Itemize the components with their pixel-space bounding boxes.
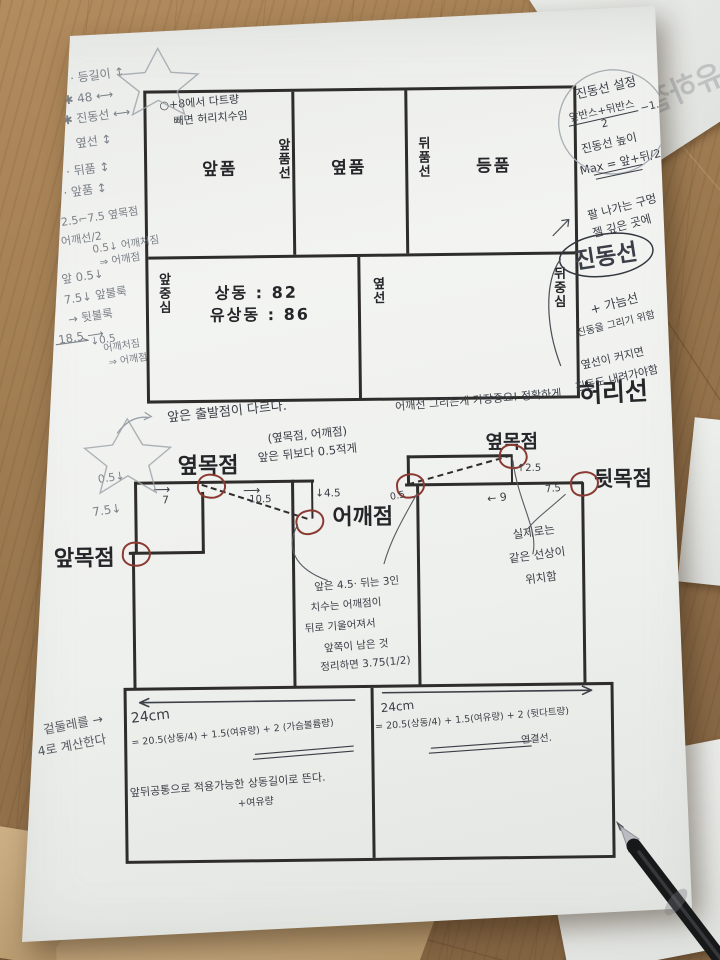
front-75-down: 7.5↓ bbox=[91, 502, 122, 520]
back-panel-seam-line bbox=[404, 90, 409, 253]
armhole-line-label: 진동선 bbox=[573, 239, 640, 275]
front-05-down: 0.5↓ bbox=[97, 470, 125, 487]
same-line-note2: 같은 선상이 bbox=[508, 545, 566, 566]
bust-ease-measurement: 유상동 : 86 bbox=[210, 301, 310, 326]
front-neck-inner-line bbox=[201, 492, 204, 553]
back-75-value: 7.5 bbox=[545, 483, 562, 496]
armhole-horizontal-line bbox=[148, 251, 575, 259]
back-panel-label: 등품 bbox=[476, 151, 512, 176]
chest-width-diagram-box: 앞품 옆품 등품 앞품선 뒤품선 앞중심 상동 : 82 유상동 : 86 옆선… bbox=[143, 85, 580, 403]
back-panel-seam-label: 뒤품선 bbox=[413, 136, 433, 178]
photo-of-pattern-worksheet: 유하철 앞품 옆품 등품 앞품선 뒤품선 앞중심 상동 : 82 유상동 : 8… bbox=[0, 0, 720, 960]
center-back-label: 뒤중심 bbox=[548, 266, 568, 308]
margin-note-shoulder-point2: ⇒ 어깨점 bbox=[108, 352, 148, 369]
armhole-setting-note: 진동선 설정 bbox=[574, 74, 637, 102]
reason-note-line3: 뒤로 기울어져서 bbox=[304, 617, 376, 635]
front-neck-point-label: 앞목점 bbox=[54, 540, 115, 573]
margin-note-front-curve: 7.5↓ 앞불룩 bbox=[63, 285, 128, 308]
start-point-note: 앞은 출발점이 다르다. bbox=[167, 400, 288, 427]
margin-note-back-length: · 등길이 ↕ bbox=[69, 66, 125, 87]
front-neck-point-circle bbox=[121, 541, 152, 568]
gauge-line-note: + 가늠선 bbox=[589, 291, 640, 317]
reason-note-line1: 앞은 4.5· 뒤는 3인 bbox=[314, 575, 400, 594]
margin-note-48: ✱ 48 ⟷ bbox=[63, 88, 115, 108]
fraction-minus: −1.5 bbox=[639, 98, 667, 115]
margin-note-armhole: ✱ 진동선 ⟷ bbox=[62, 106, 131, 129]
center-front-label: 앞중심 bbox=[153, 272, 173, 314]
reason-note-line5: 정리하면 3.75(1/2) bbox=[320, 654, 411, 673]
side-seam-label: 옆선 bbox=[368, 277, 387, 305]
reason-note-line4: 앞쪽이 남은 것 bbox=[324, 637, 389, 654]
width105-value: 10.5 bbox=[249, 494, 271, 506]
pattern-worksheet-sheet: 앞품 옆품 등품 앞품선 뒤품선 앞중심 상동 : 82 유상동 : 86 옆선… bbox=[0, 0, 720, 960]
shoulder-point-circle bbox=[293, 507, 327, 538]
shoulder-point-label: 어깨점 bbox=[332, 499, 393, 532]
width7-value: 7 bbox=[162, 494, 169, 506]
band-divider-line bbox=[371, 688, 376, 858]
side-seam-line bbox=[357, 257, 362, 398]
front-panel-label: 앞품 bbox=[202, 154, 238, 179]
side-panel-label: 옆품 bbox=[331, 153, 367, 178]
front-left-edge bbox=[132, 552, 136, 689]
back-neck-point-label: 뒷목점 bbox=[594, 462, 652, 493]
draw-armhole-note: 진동을 그리기 위함 bbox=[576, 310, 656, 340]
same-line-note1: 실제로는 bbox=[512, 523, 556, 542]
margin-note-back-panel: · 뒤품 ↕ bbox=[65, 160, 110, 180]
margin-note-front-panel: · 앞품 ↕ bbox=[63, 181, 108, 201]
pencil-arrow-doodle bbox=[117, 413, 151, 433]
dart-note-line2: 빼면 허리치수임 bbox=[173, 110, 248, 129]
drop45-value: ↓4.5 bbox=[315, 487, 341, 499]
back-right-edge bbox=[581, 482, 586, 683]
margin-note-side-seam: 옆선 ↕ bbox=[75, 133, 112, 151]
sheet-content: 앞품 옆품 등품 앞품선 뒤품선 앞중심 상동 : 82 유상동 : 86 옆선… bbox=[0, 0, 720, 960]
back-9-value: ← 9 bbox=[487, 491, 508, 506]
margin-note-front-drop: 앞 0.5↓ bbox=[61, 267, 105, 286]
front-panel-seam-label: 앞품선 bbox=[273, 138, 293, 180]
back-05-value: 0.5 bbox=[389, 490, 406, 504]
back-side-seam-edge bbox=[416, 485, 421, 685]
same-line-note3: 위치함 bbox=[524, 570, 557, 587]
fraction-denominator: 2 bbox=[600, 118, 609, 130]
front-side-seam-edge bbox=[291, 480, 296, 688]
main-sheet-wrap: 앞품 옆품 등품 앞품선 뒤품선 앞중심 상동 : 82 유상동 : 86 옆선… bbox=[0, 0, 720, 960]
back-25-rise: ↑2.5 bbox=[517, 463, 541, 475]
margin-note-side-neck: 2.5⌐7.5 옆목점 bbox=[60, 205, 139, 229]
margin-note-back-curve: → 뒷불룩 bbox=[67, 307, 114, 327]
reason-note-line2: 치수는 어깨점이 bbox=[310, 596, 382, 614]
